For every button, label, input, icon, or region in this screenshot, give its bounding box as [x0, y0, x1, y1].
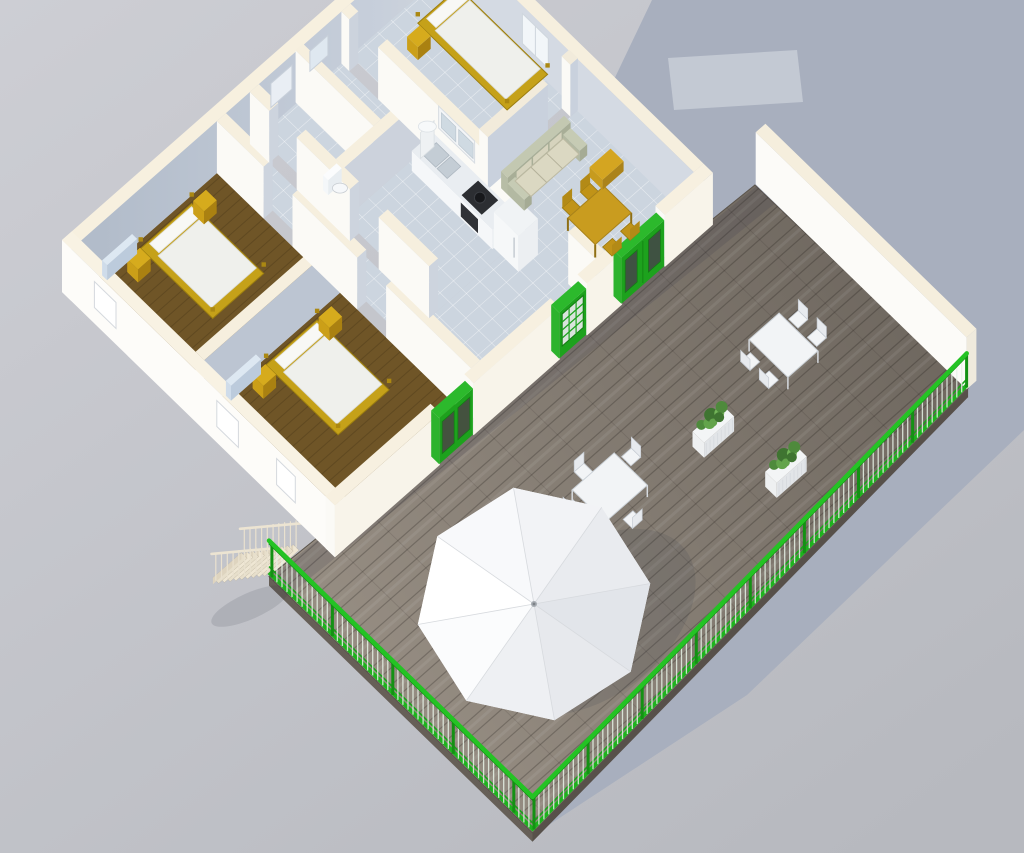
shadow-light-patch	[668, 50, 803, 110]
scene-3d-view	[0, 0, 1024, 853]
render-viewport	[0, 0, 1024, 853]
